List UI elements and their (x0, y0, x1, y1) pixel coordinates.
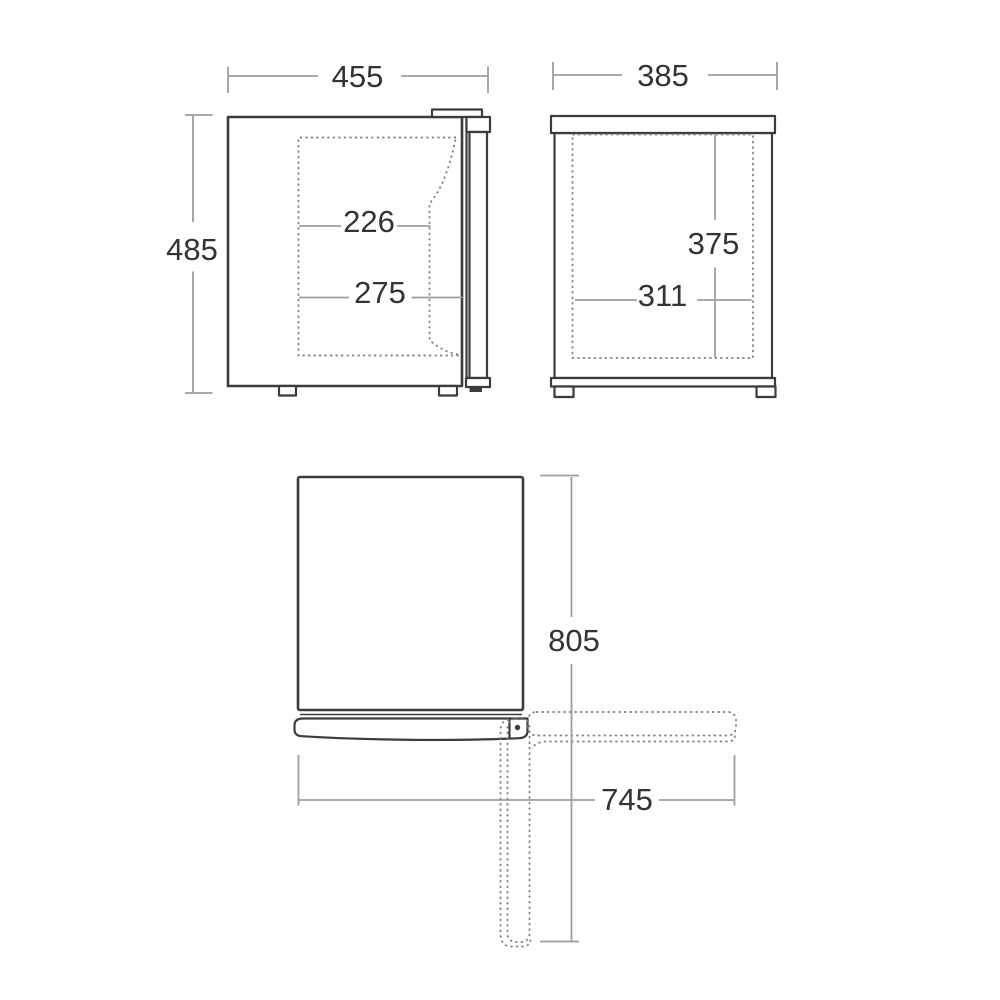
dim-375-label: 375 (688, 226, 740, 261)
dim-485-label: 485 (166, 232, 218, 267)
side-body-outline (555, 133, 773, 378)
front-hinge-bottom-cap (466, 378, 490, 387)
top-door-closed (295, 719, 528, 740)
front-hinge-foot (470, 387, 483, 392)
dim-455-label: 455 (332, 59, 384, 94)
dimension-drawing: 226 275 455 485 375 311 (0, 0, 1000, 1000)
top-hinge-pin (515, 725, 520, 730)
dim-311-label: 311 (638, 278, 687, 313)
top-door-open-90-front-lip-dashed (501, 720, 531, 947)
dim-385-label: 385 (637, 58, 689, 93)
top-body-outline (298, 477, 523, 710)
front-right-foot (439, 386, 457, 396)
front-hinge-top-cap (467, 117, 491, 132)
dim-226-label: 226 (343, 204, 395, 239)
front-body-outline (228, 117, 462, 386)
side-top-cap (551, 116, 775, 133)
top-door-open-90-dashed (508, 719, 530, 942)
dim-745-label: 745 (601, 782, 653, 817)
side-left-foot (555, 387, 574, 398)
dim-805-label: 805 (548, 623, 600, 658)
top-view: 805 745 (295, 476, 737, 947)
front-hinge-side-panel (470, 132, 488, 378)
drawing-svg: 226 275 455 485 375 311 (0, 0, 1000, 1000)
side-view: 375 311 385 (551, 58, 777, 397)
top-door-open-180-dashed (528, 712, 736, 736)
front-view: 226 275 455 485 (166, 59, 490, 396)
side-right-foot (757, 387, 776, 398)
side-bottom-strip (551, 378, 775, 387)
front-door-handle (432, 110, 482, 118)
top-door-open-180-front-lip-dashed (532, 736, 735, 749)
front-left-foot (279, 386, 296, 396)
dim-275-label: 275 (354, 275, 406, 310)
